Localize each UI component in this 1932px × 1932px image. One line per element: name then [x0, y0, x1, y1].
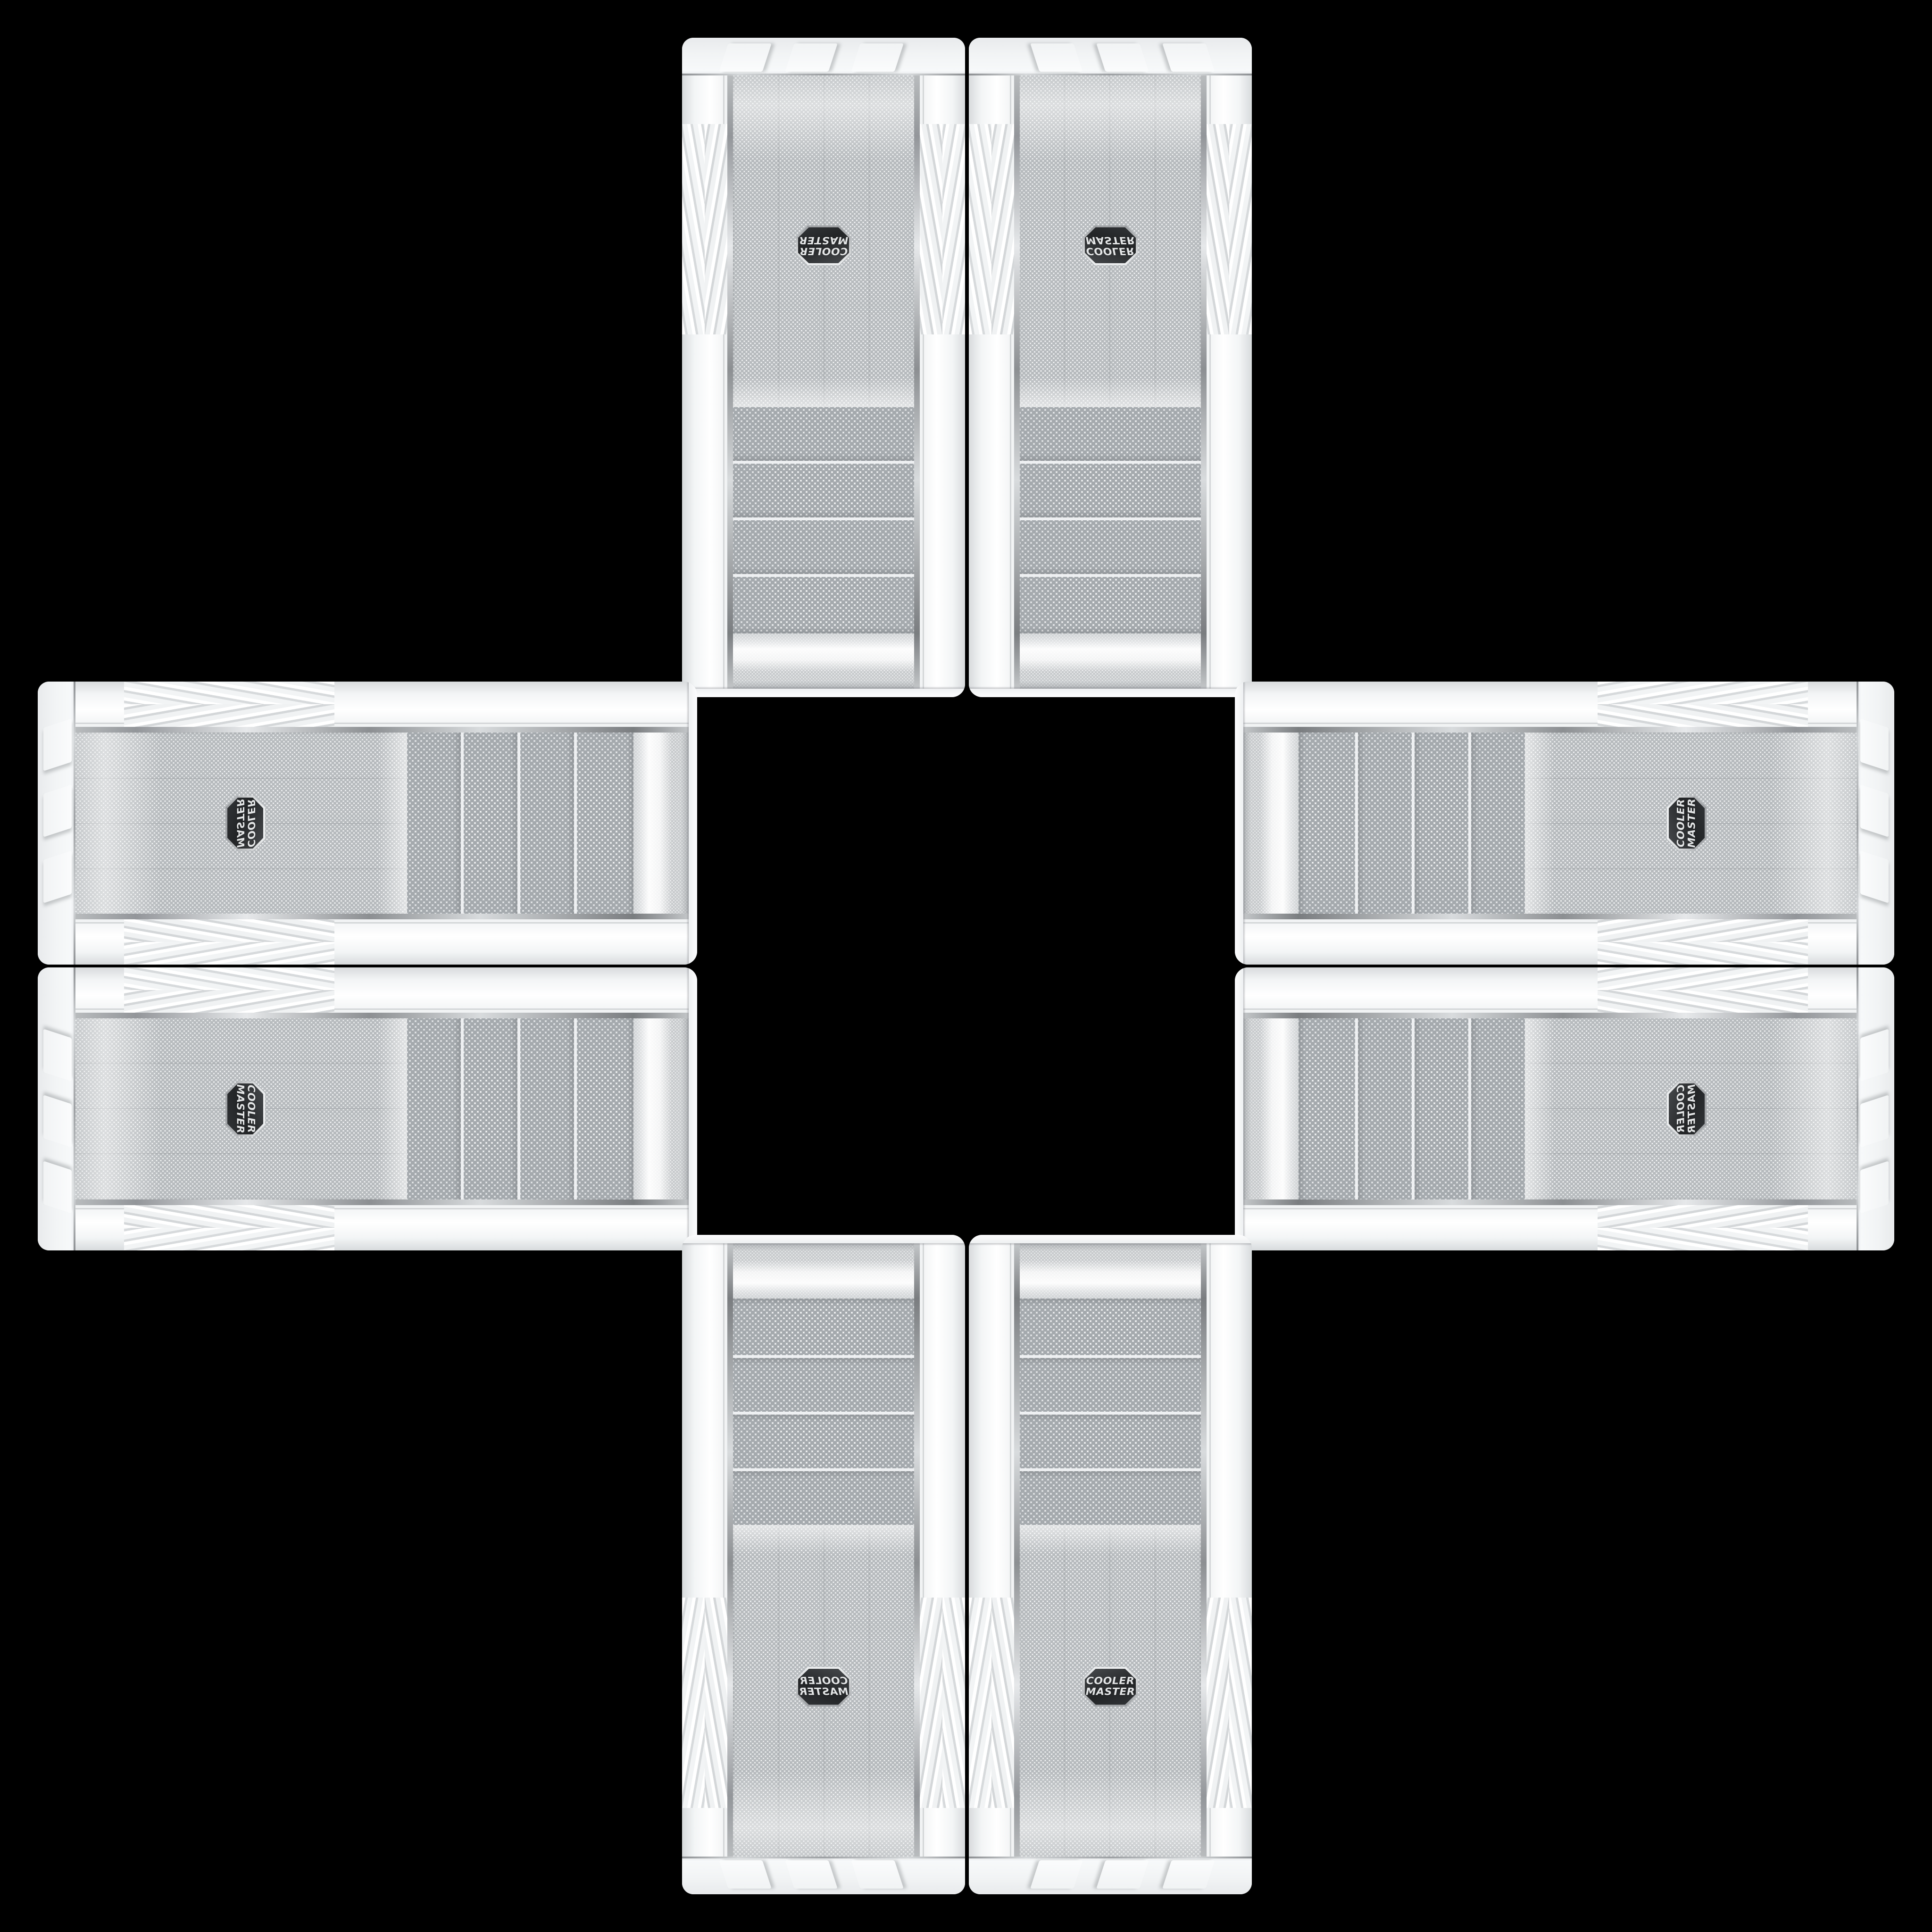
cooler-master-badge: COOLER MASTER [227, 1083, 263, 1134]
pc-case-bottom-right: COOLER MASTER [969, 1235, 1252, 1894]
drive-bay-cover [1020, 1299, 1201, 1355]
rail-chevron-ribs [1598, 1205, 1808, 1250]
rail-chevron-ribs [1207, 1598, 1252, 1808]
brand-line-2: MASTER [235, 1084, 245, 1134]
cooler-master-badge: COOLER MASTER [1669, 798, 1705, 849]
bottom-cap-notch [785, 43, 837, 72]
top-cap [682, 689, 965, 697]
drive-bay-cover [407, 1018, 464, 1199]
brand-line-1: COOLER [799, 246, 848, 256]
chrome-trim-right [1243, 727, 1857, 733]
rib-stripes-outer [1598, 682, 1808, 704]
top-cap [1235, 682, 1243, 965]
mesh-dots [520, 1018, 574, 1199]
brand-line-1: COOLER [1086, 1676, 1135, 1687]
drive-bay-cover [1299, 1018, 1355, 1199]
rib-stripes-outer [942, 1598, 965, 1808]
bay-divider-shadow [1020, 454, 1201, 461]
badge-bezel: COOLER MASTER [796, 225, 851, 265]
bottom-cap-notch [1860, 850, 1889, 903]
bottom-cap-notch [1860, 718, 1889, 771]
rail-chevron-ribs [969, 124, 1014, 334]
cooler-master-badge: COOLER MASTER [1085, 1669, 1136, 1705]
top-cap [969, 689, 1252, 697]
rib-stripes-outer [124, 942, 334, 965]
bottom-cap [38, 682, 75, 965]
rib-stripes-inner [124, 704, 334, 727]
mesh-dots [1020, 577, 1201, 633]
rail-chevron-ribs [124, 967, 334, 1013]
chrome-trim-left [914, 75, 920, 689]
brand-line-1: COOLER [246, 799, 256, 848]
mesh-highlight [733, 1243, 914, 1299]
mesh-dots [733, 1471, 914, 1525]
pc-case-right-bottom: COOLER MASTER [1235, 967, 1894, 1250]
top-cap [689, 682, 697, 965]
mesh-dots [464, 733, 517, 914]
rib-stripes-outer [1598, 1228, 1808, 1250]
bay-divider-shadow [1020, 627, 1201, 633]
bottom-cap-silver-trim [1857, 682, 1858, 965]
rib-stripes-outer [682, 1598, 705, 1808]
bottom-cap [1857, 967, 1894, 1250]
badge-bezel: COOLER MASTER [1667, 796, 1707, 850]
pc-case-left-bottom: COOLER MASTER [38, 967, 697, 1250]
drive-bay-cover [464, 733, 520, 914]
rib-stripes-inner [124, 990, 334, 1013]
brand-line-2: MASTER [1086, 235, 1135, 245]
rib-stripes-inner [1207, 1598, 1229, 1808]
pc-case-top-right: COOLER MASTER [969, 38, 1252, 697]
chrome-trim-left [1243, 914, 1857, 919]
badge-bezel: COOLER MASTER [1083, 1667, 1138, 1707]
drive-bay-cover [733, 577, 914, 633]
brand-line-1: COOLER [246, 1085, 256, 1133]
bottom-cap-notch [851, 1860, 903, 1889]
top-curved-mesh-band [633, 1018, 689, 1199]
rib-stripes-outer [1229, 1598, 1252, 1808]
bay-divider-shadow [733, 627, 914, 633]
bottom-cap-silver-trim [74, 967, 75, 1250]
rail-chevron-ribs [1598, 967, 1808, 1013]
drive-bay-grid [733, 407, 914, 633]
drive-bay-cover [1412, 1018, 1468, 1199]
mesh-dots [1415, 733, 1468, 914]
side-rail-left [969, 1241, 1014, 1859]
mesh-highlight [633, 1018, 689, 1199]
bay-divider-shadow [627, 733, 633, 914]
drive-bay-cover [520, 733, 577, 914]
brand-line-2: MASTER [799, 1687, 849, 1698]
mesh-dots [1358, 1018, 1412, 1199]
top-curved-mesh-band [1020, 633, 1201, 689]
bay-divider-shadow [1415, 1018, 1421, 1199]
bay-divider-shadow [1358, 733, 1365, 914]
chrome-trim-right [1243, 1199, 1857, 1205]
cooler-master-badge: COOLER MASTER [1669, 1083, 1705, 1134]
rib-stripes-outer [942, 124, 965, 334]
top-curved-mesh-band [1020, 1243, 1201, 1299]
side-rail-right [73, 1205, 691, 1250]
mesh-dots [733, 1358, 914, 1412]
rib-stripes-inner [991, 1598, 1014, 1808]
bottom-cap-silver-trim [1857, 967, 1858, 1250]
bottom-cap-silver-trim [969, 74, 1252, 75]
chrome-trim-right [1201, 1243, 1207, 1857]
drive-bay-cover [464, 1018, 520, 1199]
mesh-dots [1471, 1018, 1525, 1199]
drive-bay-cover [1020, 1468, 1201, 1525]
chrome-trim-right [75, 1199, 689, 1205]
chrome-trim-right [727, 75, 733, 689]
bay-divider-shadow [733, 1415, 914, 1421]
mesh-dots [1299, 733, 1355, 914]
drive-bay-grid [407, 733, 633, 914]
mesh-highlight [1243, 1018, 1299, 1199]
drive-bay-cover [1020, 1412, 1201, 1468]
brand-line-1: COOLER [799, 1676, 848, 1687]
drive-bay-cover [407, 733, 464, 914]
rib-stripes-inner [1598, 1205, 1808, 1228]
chrome-trim-left [1014, 75, 1020, 689]
top-curved-mesh-band [733, 633, 914, 689]
pc-case-top-left: COOLER MASTER [682, 38, 965, 697]
bottom-cap-silver-trim [969, 1857, 1252, 1858]
bay-divider-shadow [1299, 1018, 1305, 1199]
rib-stripes-outer [124, 967, 334, 990]
rib-stripes-outer [682, 124, 705, 334]
chrome-trim-left [914, 1243, 920, 1857]
badge-bezel: COOLER MASTER [796, 1667, 851, 1707]
mesh-dots [733, 464, 914, 517]
bay-divider-shadow [511, 733, 517, 914]
chrome-trim-left [75, 914, 689, 919]
drive-bay-cover [733, 1355, 914, 1412]
bay-divider-shadow [1020, 511, 1201, 517]
mesh-dots [577, 733, 633, 914]
mesh-highlight [1020, 1243, 1201, 1299]
drive-bay-cover [1412, 733, 1468, 914]
chrome-trim-right [727, 1243, 733, 1857]
bay-divider-shadow [1020, 1358, 1201, 1365]
brand-line-2: MASTER [799, 235, 849, 245]
bay-divider-shadow [567, 733, 574, 914]
drive-bay-cover [733, 520, 914, 577]
mesh-highlight [733, 633, 914, 689]
fan-intake-mesh: COOLER MASTER [75, 1018, 407, 1199]
bottom-cap [682, 38, 965, 75]
bay-divider-shadow [567, 1018, 574, 1199]
rib-stripes-outer [124, 682, 334, 704]
mesh-dots [1358, 733, 1412, 914]
chrome-trim-left [75, 1013, 689, 1018]
fan-intake-mesh: COOLER MASTER [75, 733, 407, 914]
bottom-cap-notch [1860, 784, 1889, 837]
drive-bay-cover [1020, 1355, 1201, 1412]
mesh-dots [520, 733, 574, 914]
drive-bay-grid [1299, 1018, 1525, 1199]
top-cap [1235, 967, 1243, 1250]
badge-bezel: COOLER MASTER [1667, 1082, 1707, 1136]
drive-bay-cover [1468, 733, 1525, 914]
mesh-dots [1020, 1358, 1201, 1412]
rib-stripes-outer [969, 124, 991, 334]
mesh-dots [1020, 1415, 1201, 1468]
chrome-trim-right [75, 727, 689, 733]
bottom-cap-notch [43, 784, 72, 837]
brand-line-1: COOLER [1676, 1085, 1687, 1133]
side-rail-left [73, 967, 691, 1013]
mesh-dots [1020, 407, 1201, 461]
bay-divider-shadow [1415, 733, 1421, 914]
cooler-master-badge: COOLER MASTER [1085, 227, 1136, 263]
bottom-cap-notch [43, 850, 72, 903]
mesh-dots [733, 1415, 914, 1468]
bottom-cap [969, 38, 1252, 75]
rail-chevron-ribs [124, 682, 334, 727]
side-rail-right [682, 1241, 727, 1859]
bay-divider-shadow [733, 1299, 914, 1305]
rail-chevron-ribs [920, 124, 965, 334]
mesh-dots [1020, 1299, 1201, 1355]
top-cap [689, 967, 697, 1250]
rib-stripes-outer [1598, 942, 1808, 965]
bottom-cap-notch [1096, 1860, 1149, 1889]
bottom-cap [969, 1857, 1252, 1894]
bottom-cap-silver-trim [74, 682, 75, 965]
top-curved-mesh-band [633, 733, 689, 914]
brand-line-2: MASTER [235, 799, 245, 848]
rail-chevron-ribs [682, 124, 727, 334]
mesh-dots [1415, 1018, 1468, 1199]
side-rail-right [1241, 682, 1859, 727]
mesh-dots [733, 520, 914, 574]
bottom-cap-notch [43, 718, 72, 771]
bottom-cap-notch [1096, 43, 1149, 72]
chrome-trim-left [1243, 1013, 1857, 1018]
bottom-cap-silver-trim [682, 1857, 965, 1858]
bay-divider-shadow [1471, 733, 1478, 914]
bottom-cap-silver-trim [682, 74, 965, 75]
bottom-cap [682, 1857, 965, 1894]
rib-stripes-inner [1598, 919, 1808, 942]
bottom-cap-notch [1860, 1161, 1889, 1213]
side-rail-right [1207, 73, 1252, 691]
drive-bay-cover [1299, 733, 1355, 914]
side-rail-left [920, 1241, 965, 1859]
rib-stripes-outer [124, 1228, 334, 1250]
bottom-cap [1857, 682, 1894, 965]
bay-divider-shadow [1358, 1018, 1365, 1199]
rail-chevron-ribs [124, 1205, 334, 1250]
mesh-dots [733, 577, 914, 633]
bottom-cap-notch [1162, 1860, 1215, 1889]
brand-line-2: MASTER [1687, 1084, 1698, 1134]
rail-chevron-ribs [1207, 124, 1252, 334]
side-rail-left [73, 919, 691, 965]
bottom-cap-notch [1162, 43, 1215, 72]
rib-stripes-inner [1207, 124, 1229, 334]
bottom-cap-notch [1860, 1029, 1889, 1081]
drive-bay-cover [733, 1468, 914, 1525]
pc-case-right-top: COOLER MASTER [1235, 682, 1894, 965]
drive-bay-cover [1020, 464, 1201, 520]
side-rail-right [1207, 1241, 1252, 1859]
drive-bay-cover [1355, 733, 1412, 914]
drive-bay-cover [1355, 1018, 1412, 1199]
bottom-cap-notch [43, 1029, 72, 1081]
mesh-highlight [1243, 733, 1299, 914]
drive-bay-grid [1020, 407, 1201, 633]
brand-line-2: MASTER [1687, 799, 1698, 848]
bay-divider-shadow [1020, 1299, 1201, 1305]
top-curved-mesh-band [1243, 733, 1299, 914]
drive-bay-cover [733, 1299, 914, 1355]
rib-stripes-inner [920, 124, 942, 334]
drive-bay-grid [1299, 733, 1525, 914]
rail-chevron-ribs [969, 1598, 1014, 1808]
drive-bay-cover [733, 464, 914, 520]
pc-case-left-top: COOLER MASTER [38, 682, 697, 965]
rib-stripes-outer [969, 1598, 991, 1808]
brand-line-2: MASTER [1086, 1687, 1135, 1698]
rib-stripes-inner [1598, 704, 1808, 727]
top-cap [682, 1235, 965, 1243]
mesh-dots [407, 733, 461, 914]
bottom-cap-notch [1860, 1095, 1889, 1147]
cooler-master-badge: COOLER MASTER [798, 227, 849, 263]
mesh-dots [1020, 464, 1201, 517]
cooler-master-badge: COOLER MASTER [227, 798, 263, 849]
pc-case-bottom-left: COOLER MASTER [682, 1235, 965, 1894]
bay-divider-shadow [454, 733, 461, 914]
bay-divider-shadow [733, 567, 914, 574]
rib-stripes-inner [920, 1598, 942, 1808]
fan-intake-mesh: COOLER MASTER [733, 75, 914, 407]
side-rail-right [73, 682, 691, 727]
bay-divider-shadow [1020, 1471, 1201, 1478]
chrome-trim-left [1014, 1243, 1020, 1857]
fan-intake-mesh: COOLER MASTER [1020, 1525, 1201, 1857]
drive-bay-cover [520, 1018, 577, 1199]
bottom-cap-notch [43, 1095, 72, 1147]
bay-divider-shadow [733, 1471, 914, 1478]
rib-stripes-inner [124, 1205, 334, 1228]
bottom-cap-notch [1030, 43, 1083, 72]
fan-intake-mesh: COOLER MASTER [733, 1525, 914, 1857]
bay-divider-shadow [454, 1018, 461, 1199]
mesh-dots [1299, 1018, 1355, 1199]
mesh-dots [407, 1018, 461, 1199]
top-curved-mesh-band [1243, 1018, 1299, 1199]
bottom-cap [38, 967, 75, 1250]
bottom-cap-notch [1030, 1860, 1083, 1889]
scene: COOLER MASTER [0, 0, 1932, 1932]
rail-chevron-ribs [1598, 919, 1808, 965]
rib-stripes-inner [705, 1598, 727, 1808]
side-rail-left [969, 73, 1014, 691]
badge-bezel: COOLER MASTER [225, 796, 265, 850]
cooler-master-badge: COOLER MASTER [798, 1669, 849, 1705]
mesh-highlight [633, 733, 689, 914]
top-cap [969, 1235, 1252, 1243]
side-rail-right [1241, 1205, 1859, 1250]
fan-intake-mesh: COOLER MASTER [1525, 733, 1857, 914]
bay-divider-shadow [733, 454, 914, 461]
bottom-cap-notch [719, 1860, 771, 1889]
drive-bay-grid [733, 1299, 914, 1525]
drive-bay-cover [733, 1412, 914, 1468]
rib-stripes-outer [1229, 124, 1252, 334]
rib-stripes-inner [991, 124, 1014, 334]
bay-divider-shadow [733, 511, 914, 517]
drive-bay-grid [407, 1018, 633, 1199]
rail-chevron-ribs [124, 919, 334, 965]
rib-stripes-inner [705, 124, 727, 334]
badge-bezel: COOLER MASTER [1083, 225, 1138, 265]
side-rail-left [920, 73, 965, 691]
drive-bay-grid [1020, 1299, 1201, 1525]
drive-bay-cover [1020, 520, 1201, 577]
mesh-dots [1020, 520, 1201, 574]
rail-chevron-ribs [920, 1598, 965, 1808]
bay-divider-shadow [1299, 733, 1305, 914]
bay-divider-shadow [1020, 567, 1201, 574]
fan-intake-mesh: COOLER MASTER [1020, 75, 1201, 407]
side-rail-right [682, 73, 727, 691]
drive-bay-cover [1468, 1018, 1525, 1199]
top-curved-mesh-band [733, 1243, 914, 1299]
brand-line-1: COOLER [1676, 799, 1687, 848]
mesh-highlight [1020, 633, 1201, 689]
rail-chevron-ribs [682, 1598, 727, 1808]
bottom-cap-notch [43, 1161, 72, 1213]
bottom-cap-notch [851, 43, 903, 72]
bay-divider-shadow [733, 1358, 914, 1365]
mesh-dots [733, 1299, 914, 1355]
drive-bay-cover [733, 407, 914, 464]
bay-divider-shadow [511, 1018, 517, 1199]
drive-bay-cover [577, 1018, 633, 1199]
bay-divider-shadow [1020, 1415, 1201, 1421]
mesh-dots [733, 407, 914, 461]
rib-stripes-inner [1598, 990, 1808, 1013]
side-rail-left [1241, 919, 1859, 965]
side-rail-left [1241, 967, 1859, 1013]
rib-stripes-outer [1598, 967, 1808, 990]
mesh-dots [1471, 733, 1525, 914]
chrome-trim-right [1201, 75, 1207, 689]
drive-bay-cover [1020, 577, 1201, 633]
mesh-dots [464, 1018, 517, 1199]
badge-bezel: COOLER MASTER [225, 1082, 265, 1136]
bay-divider-shadow [627, 1018, 633, 1199]
brand-line-1: COOLER [1086, 246, 1135, 256]
mesh-dots [577, 1018, 633, 1199]
fan-intake-mesh: COOLER MASTER [1525, 1018, 1857, 1199]
rail-chevron-ribs [1598, 682, 1808, 727]
drive-bay-cover [577, 733, 633, 914]
mesh-dots [1020, 1471, 1201, 1525]
bay-divider-shadow [1471, 1018, 1478, 1199]
drive-bay-cover [1020, 407, 1201, 464]
rib-stripes-inner [124, 919, 334, 942]
bottom-cap-notch [719, 43, 771, 72]
bottom-cap-notch [785, 1860, 837, 1889]
